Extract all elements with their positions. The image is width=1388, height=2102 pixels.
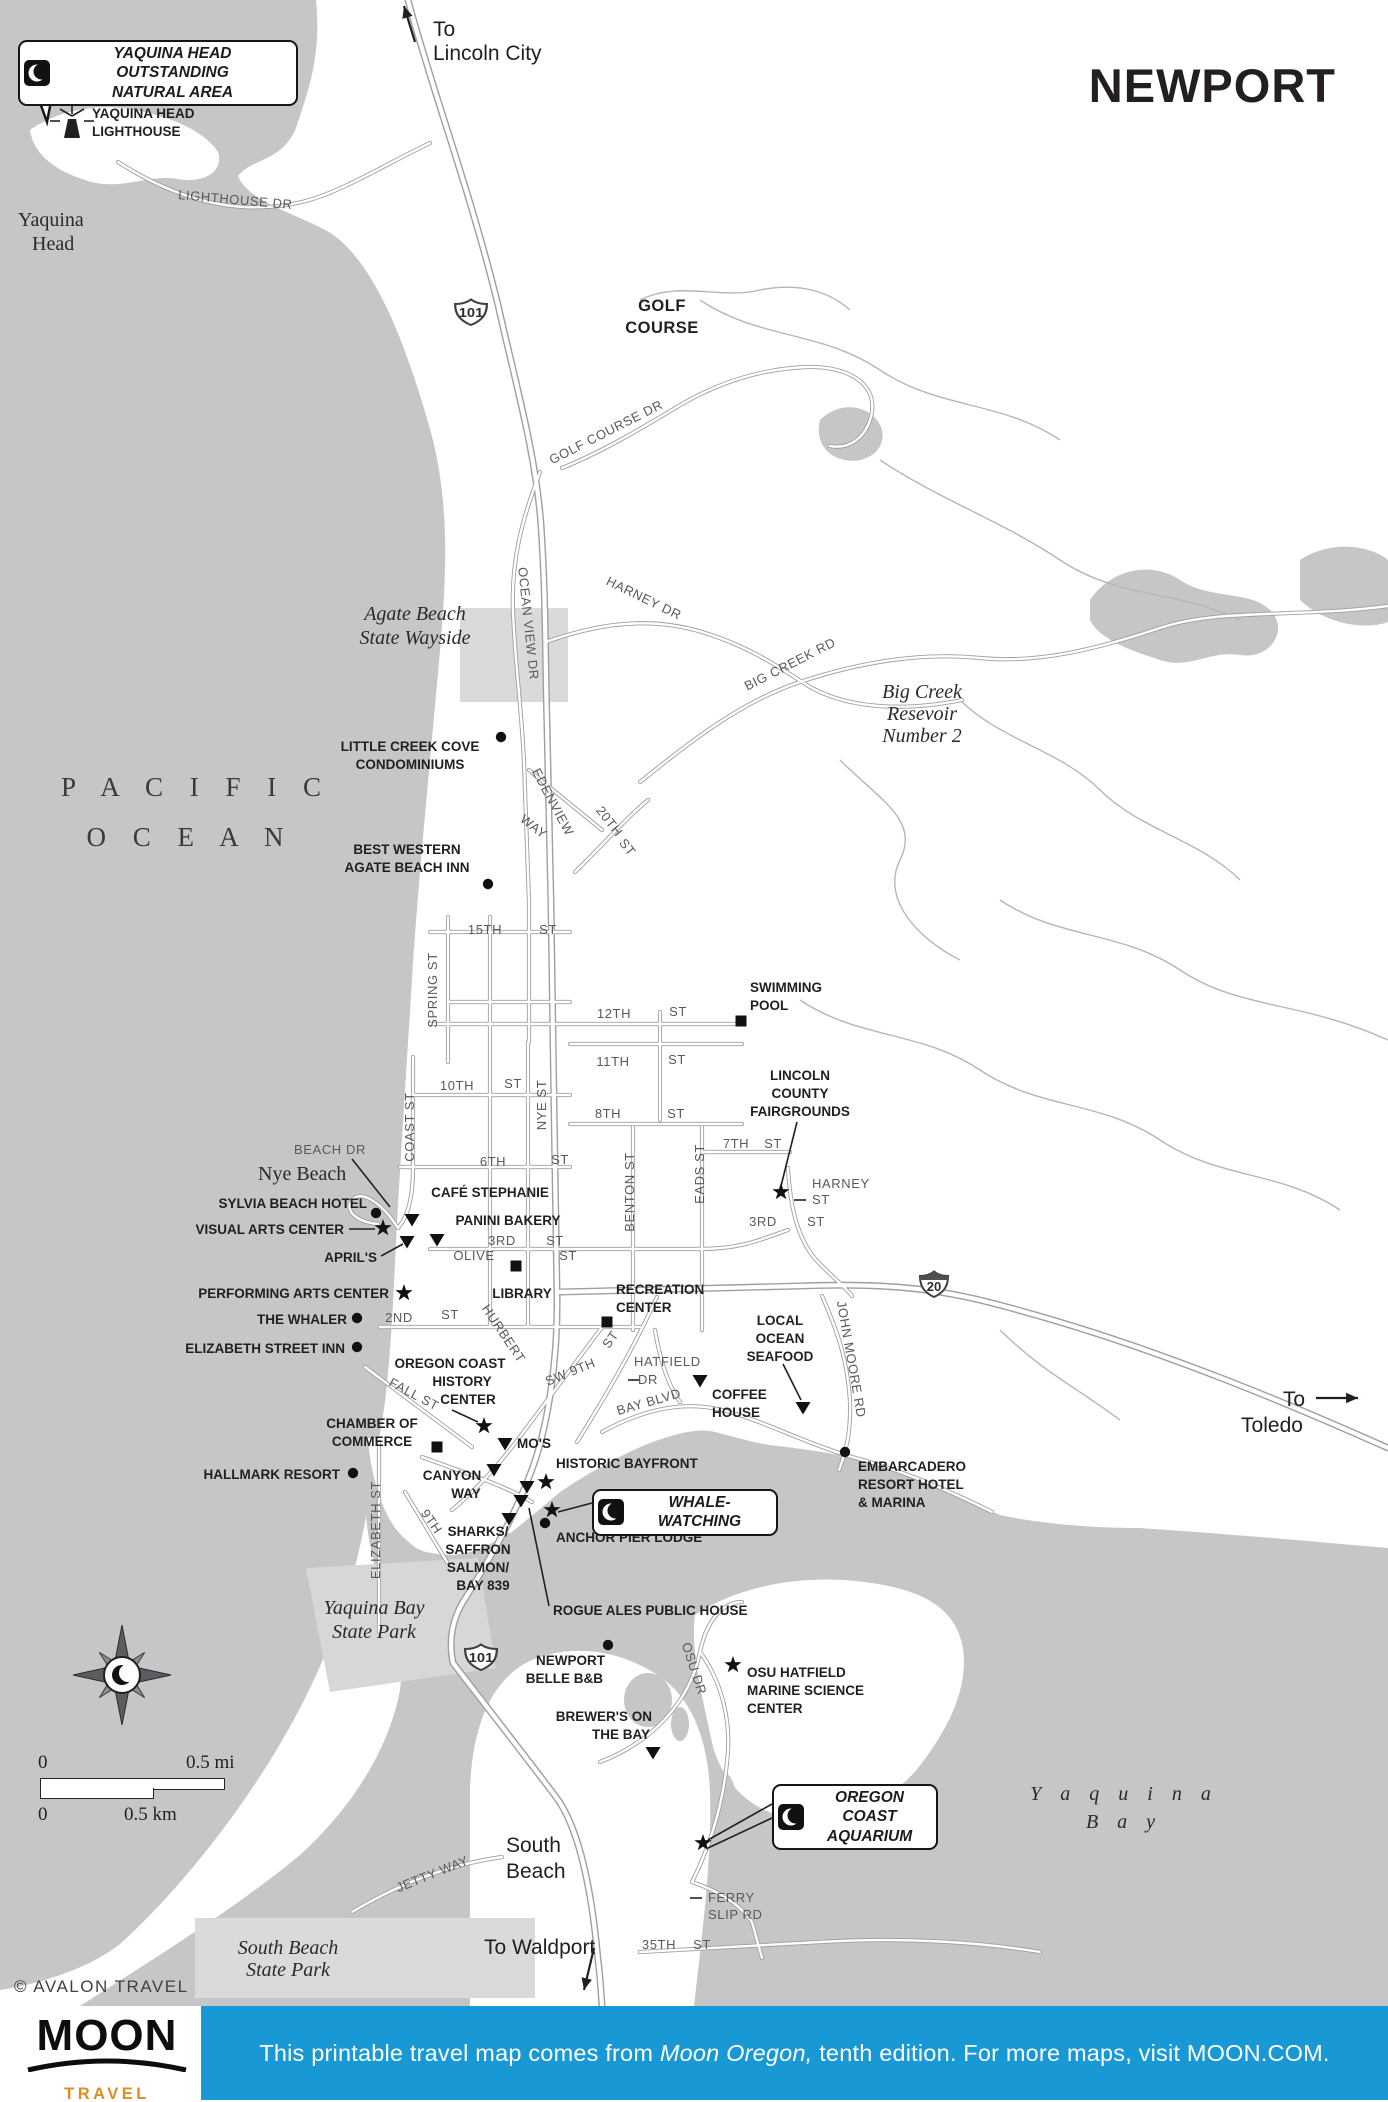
map-label: 11TH xyxy=(596,1054,629,1069)
map-label: ST xyxy=(669,1004,687,1019)
map-label: ST xyxy=(504,1076,522,1091)
road-us-20-fill xyxy=(560,1285,1388,1448)
map-label: HATFIELD xyxy=(634,1354,701,1369)
poi-dot-marker xyxy=(348,1468,358,1478)
map-label: 12TH xyxy=(597,1006,631,1021)
map-label: OREGON COAST xyxy=(394,1356,506,1371)
road-edenview-way-fill xyxy=(529,770,602,830)
page-title: NEWPORT xyxy=(1040,58,1336,113)
leader-line xyxy=(452,1410,478,1422)
map-label: HARNEY DR xyxy=(604,573,684,622)
south-beach-sp-patch xyxy=(195,1918,535,1998)
map-label: ST xyxy=(616,836,639,859)
poi-dot-marker xyxy=(483,879,493,889)
moon-icon xyxy=(24,60,50,86)
scale-km-label: 0.5 km xyxy=(124,1804,177,1826)
footer-text-pre: This printable travel map comes from xyxy=(259,2040,660,2066)
map-label: SPRING ST xyxy=(425,952,440,1027)
map-label: 15TH xyxy=(468,922,502,937)
poi-star-marker xyxy=(772,1183,789,1199)
road-harney-dr-fill xyxy=(546,623,962,706)
creek xyxy=(1160,1140,1340,1210)
scale-km-zero: 0 xyxy=(38,1804,48,1826)
newport-map: 10110120 ToLincoln CityYAQUINA HEADLIGHT… xyxy=(0,0,1388,2006)
poi-dot-marker xyxy=(603,1640,613,1650)
map-label: 7TH xyxy=(723,1136,749,1151)
creek xyxy=(1000,900,1388,1040)
road-fairgrounds-access-casing xyxy=(788,1168,852,1296)
pacific-ocean-shape xyxy=(0,0,445,1990)
map-label: 20TH xyxy=(593,803,626,839)
map-label: HURBERT xyxy=(479,1302,529,1366)
map-label: GOLF COURSE DR xyxy=(547,397,666,467)
poi-triangle-marker xyxy=(796,1402,811,1415)
road-harney-dr-casing xyxy=(546,623,962,706)
map-label: LINCOLN xyxy=(770,1068,830,1083)
poi-star-marker xyxy=(475,1417,492,1433)
creek xyxy=(700,300,1060,440)
map-label: ST xyxy=(441,1307,459,1322)
map-label: 3RD xyxy=(488,1233,516,1248)
poi-square-marker xyxy=(432,1442,443,1453)
water-layer xyxy=(0,0,1388,2006)
footer-text-em: Moon Oregon, xyxy=(660,2040,813,2066)
creek xyxy=(800,1000,1160,1140)
map-label: Lincoln City xyxy=(433,42,542,65)
road-john-moore-rd-fill xyxy=(822,1296,850,1470)
road-ocean-view-dr-fill xyxy=(513,472,540,1042)
map-label: Big Creek xyxy=(882,681,963,703)
callout-oregon-coast-aquarium: OREGON COASTAQUARIUM xyxy=(772,1784,938,1850)
map-label: NYE ST xyxy=(534,1080,549,1131)
scale-bar-rules xyxy=(38,1752,238,1802)
shield-outline xyxy=(455,300,487,326)
map-label: CENTER xyxy=(616,1300,672,1315)
poi-square-marker xyxy=(736,1016,747,1027)
scale-bar: 0 0.5 mi 0 0.5 km xyxy=(38,1752,238,1802)
poi-triangle-marker xyxy=(400,1236,415,1249)
footer-banner: This printable travel map comes from Moo… xyxy=(201,2006,1388,2100)
road-20th-st-fill xyxy=(575,800,648,872)
map-label: 3RD xyxy=(749,1214,777,1229)
map-label: 10TH xyxy=(440,1078,474,1093)
poi-triangle-marker xyxy=(405,1214,420,1227)
map-label: CENTER xyxy=(440,1392,496,1407)
map-label: SEAFOOD xyxy=(747,1349,814,1364)
callout-text: WHALE-WATCHING xyxy=(631,1493,768,1532)
map-label: FAIRGROUNDS xyxy=(750,1104,850,1119)
yaquina-bay-sp-patch xyxy=(306,1558,496,1692)
map-label: ST xyxy=(764,1136,782,1151)
road-fairgrounds-access-fill xyxy=(788,1168,852,1296)
moon-logo-subtitle: TRAVEL GUIDES xyxy=(22,2085,192,2102)
creek xyxy=(640,287,850,310)
map-label: Toledo xyxy=(1241,1414,1303,1437)
poi-star-marker xyxy=(395,1284,412,1300)
map-label: DR xyxy=(638,1372,658,1387)
map-label: OCEAN xyxy=(756,1331,805,1346)
map-label: Number 2 xyxy=(881,725,961,747)
poi-triangle-marker xyxy=(430,1234,445,1247)
map-label: PANINI BAKERY xyxy=(455,1213,560,1228)
footer-text-post: tenth edition. For more maps, visit MOON… xyxy=(812,2040,1329,2066)
footer-banner-text: This printable travel map comes from Moo… xyxy=(259,2040,1329,2067)
poi-dot-marker xyxy=(840,1447,850,1457)
road-3rd-st-fill xyxy=(430,1230,788,1249)
road-us-20-casing xyxy=(560,1285,1388,1448)
creek-layer xyxy=(640,287,1388,1420)
map-label: HARNEY xyxy=(812,1176,870,1191)
map-label: 8TH xyxy=(595,1106,621,1121)
poi-square-marker xyxy=(602,1317,613,1328)
road-hatfield-dr-casing xyxy=(655,1330,680,1402)
creek xyxy=(1000,1330,1120,1420)
map-canvas: 10110120 ToLincoln CityYAQUINA HEADLIGHT… xyxy=(0,0,1388,2006)
scale-km-rule xyxy=(40,1788,154,1799)
poi-dot-marker xyxy=(540,1518,550,1528)
poi-dot-marker xyxy=(496,732,506,742)
poi-dot-marker xyxy=(352,1342,362,1352)
map-label: SWIMMING xyxy=(750,980,822,995)
creek xyxy=(840,760,960,960)
map-label: COURSE xyxy=(625,319,699,337)
map-label: LIBRARY xyxy=(492,1286,552,1301)
arrowhead-icon xyxy=(1346,1393,1358,1404)
map-label: HISTORY xyxy=(432,1374,491,1389)
poi-dot-marker xyxy=(371,1208,381,1218)
leader-line xyxy=(783,1364,801,1400)
shield-band xyxy=(920,1272,948,1281)
map-label: ST xyxy=(667,1106,685,1121)
map-label: COUNTY xyxy=(772,1086,829,1101)
map-label: ST xyxy=(807,1214,825,1229)
map-label: FALL ST xyxy=(387,1375,442,1414)
route-shield-101: 101 xyxy=(455,300,487,326)
map-label: LOCAL xyxy=(757,1313,804,1328)
map-label: POOL xyxy=(750,998,788,1013)
callout-text: YAQUINA HEAD OUTSTANDINGNATURAL AREA xyxy=(57,44,288,102)
moon-logo-arc-icon xyxy=(22,2058,192,2072)
callout-whale-watching: WHALE-WATCHING xyxy=(592,1489,778,1536)
map-label: WAY xyxy=(517,811,550,841)
callout-text: OREGON COASTAQUARIUM xyxy=(811,1788,928,1846)
map-label: COFFEE xyxy=(712,1387,767,1402)
poi-square-marker xyxy=(511,1261,522,1272)
moon-icon xyxy=(778,1804,804,1830)
moon-icon xyxy=(598,1499,624,1525)
poi-dot-marker xyxy=(352,1313,362,1323)
map-label: ST xyxy=(599,1328,622,1351)
poi-triangle-marker xyxy=(693,1375,708,1388)
moon-travel-guides-logo: MOON TRAVEL GUIDES xyxy=(22,2014,192,2102)
map-label: ST xyxy=(812,1192,830,1207)
footer: MOON TRAVEL GUIDES This printable travel… xyxy=(0,2006,1388,2102)
creek xyxy=(960,700,1240,880)
map-label: GOLF xyxy=(638,297,686,315)
moon-logo-word: MOON xyxy=(22,2014,192,2058)
map-label: ST xyxy=(668,1052,686,1067)
map-label: To xyxy=(433,18,455,41)
callout-yaquina-head-ona: YAQUINA HEAD OUTSTANDINGNATURAL AREA xyxy=(18,40,298,106)
